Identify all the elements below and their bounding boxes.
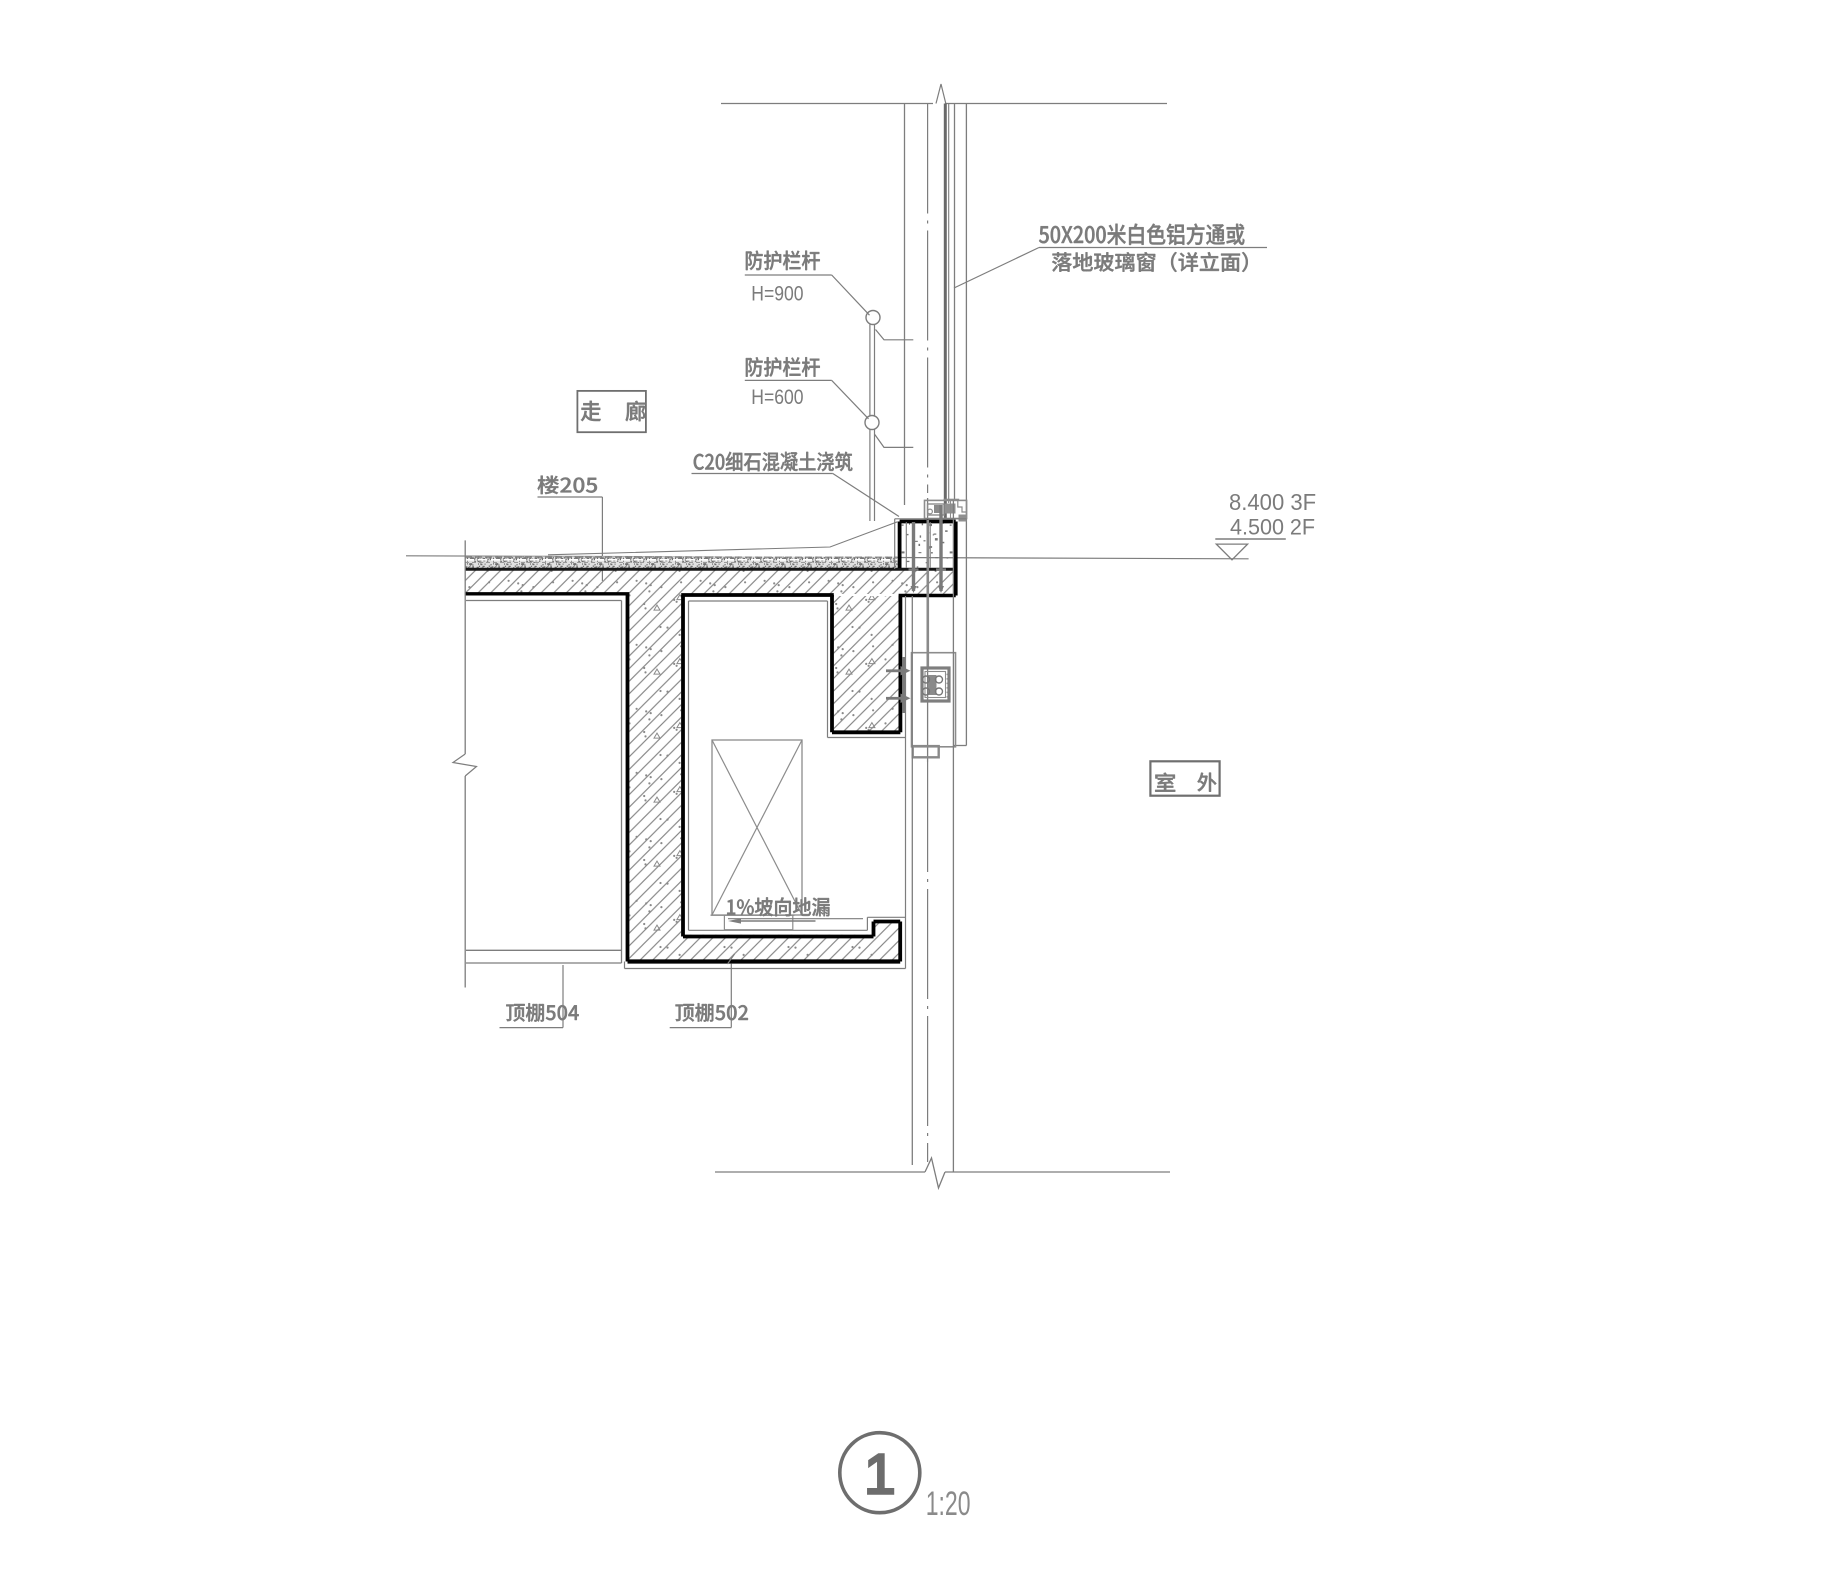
- svg-text:H=900: H=900: [751, 282, 803, 306]
- svg-text:1:20: 1:20: [926, 1485, 971, 1523]
- svg-text:1: 1: [864, 1443, 896, 1507]
- svg-text:4.500 2F: 4.500 2F: [1230, 514, 1315, 539]
- svg-text:8.400 3F: 8.400 3F: [1229, 489, 1316, 515]
- svg-text:H=600: H=600: [751, 385, 803, 409]
